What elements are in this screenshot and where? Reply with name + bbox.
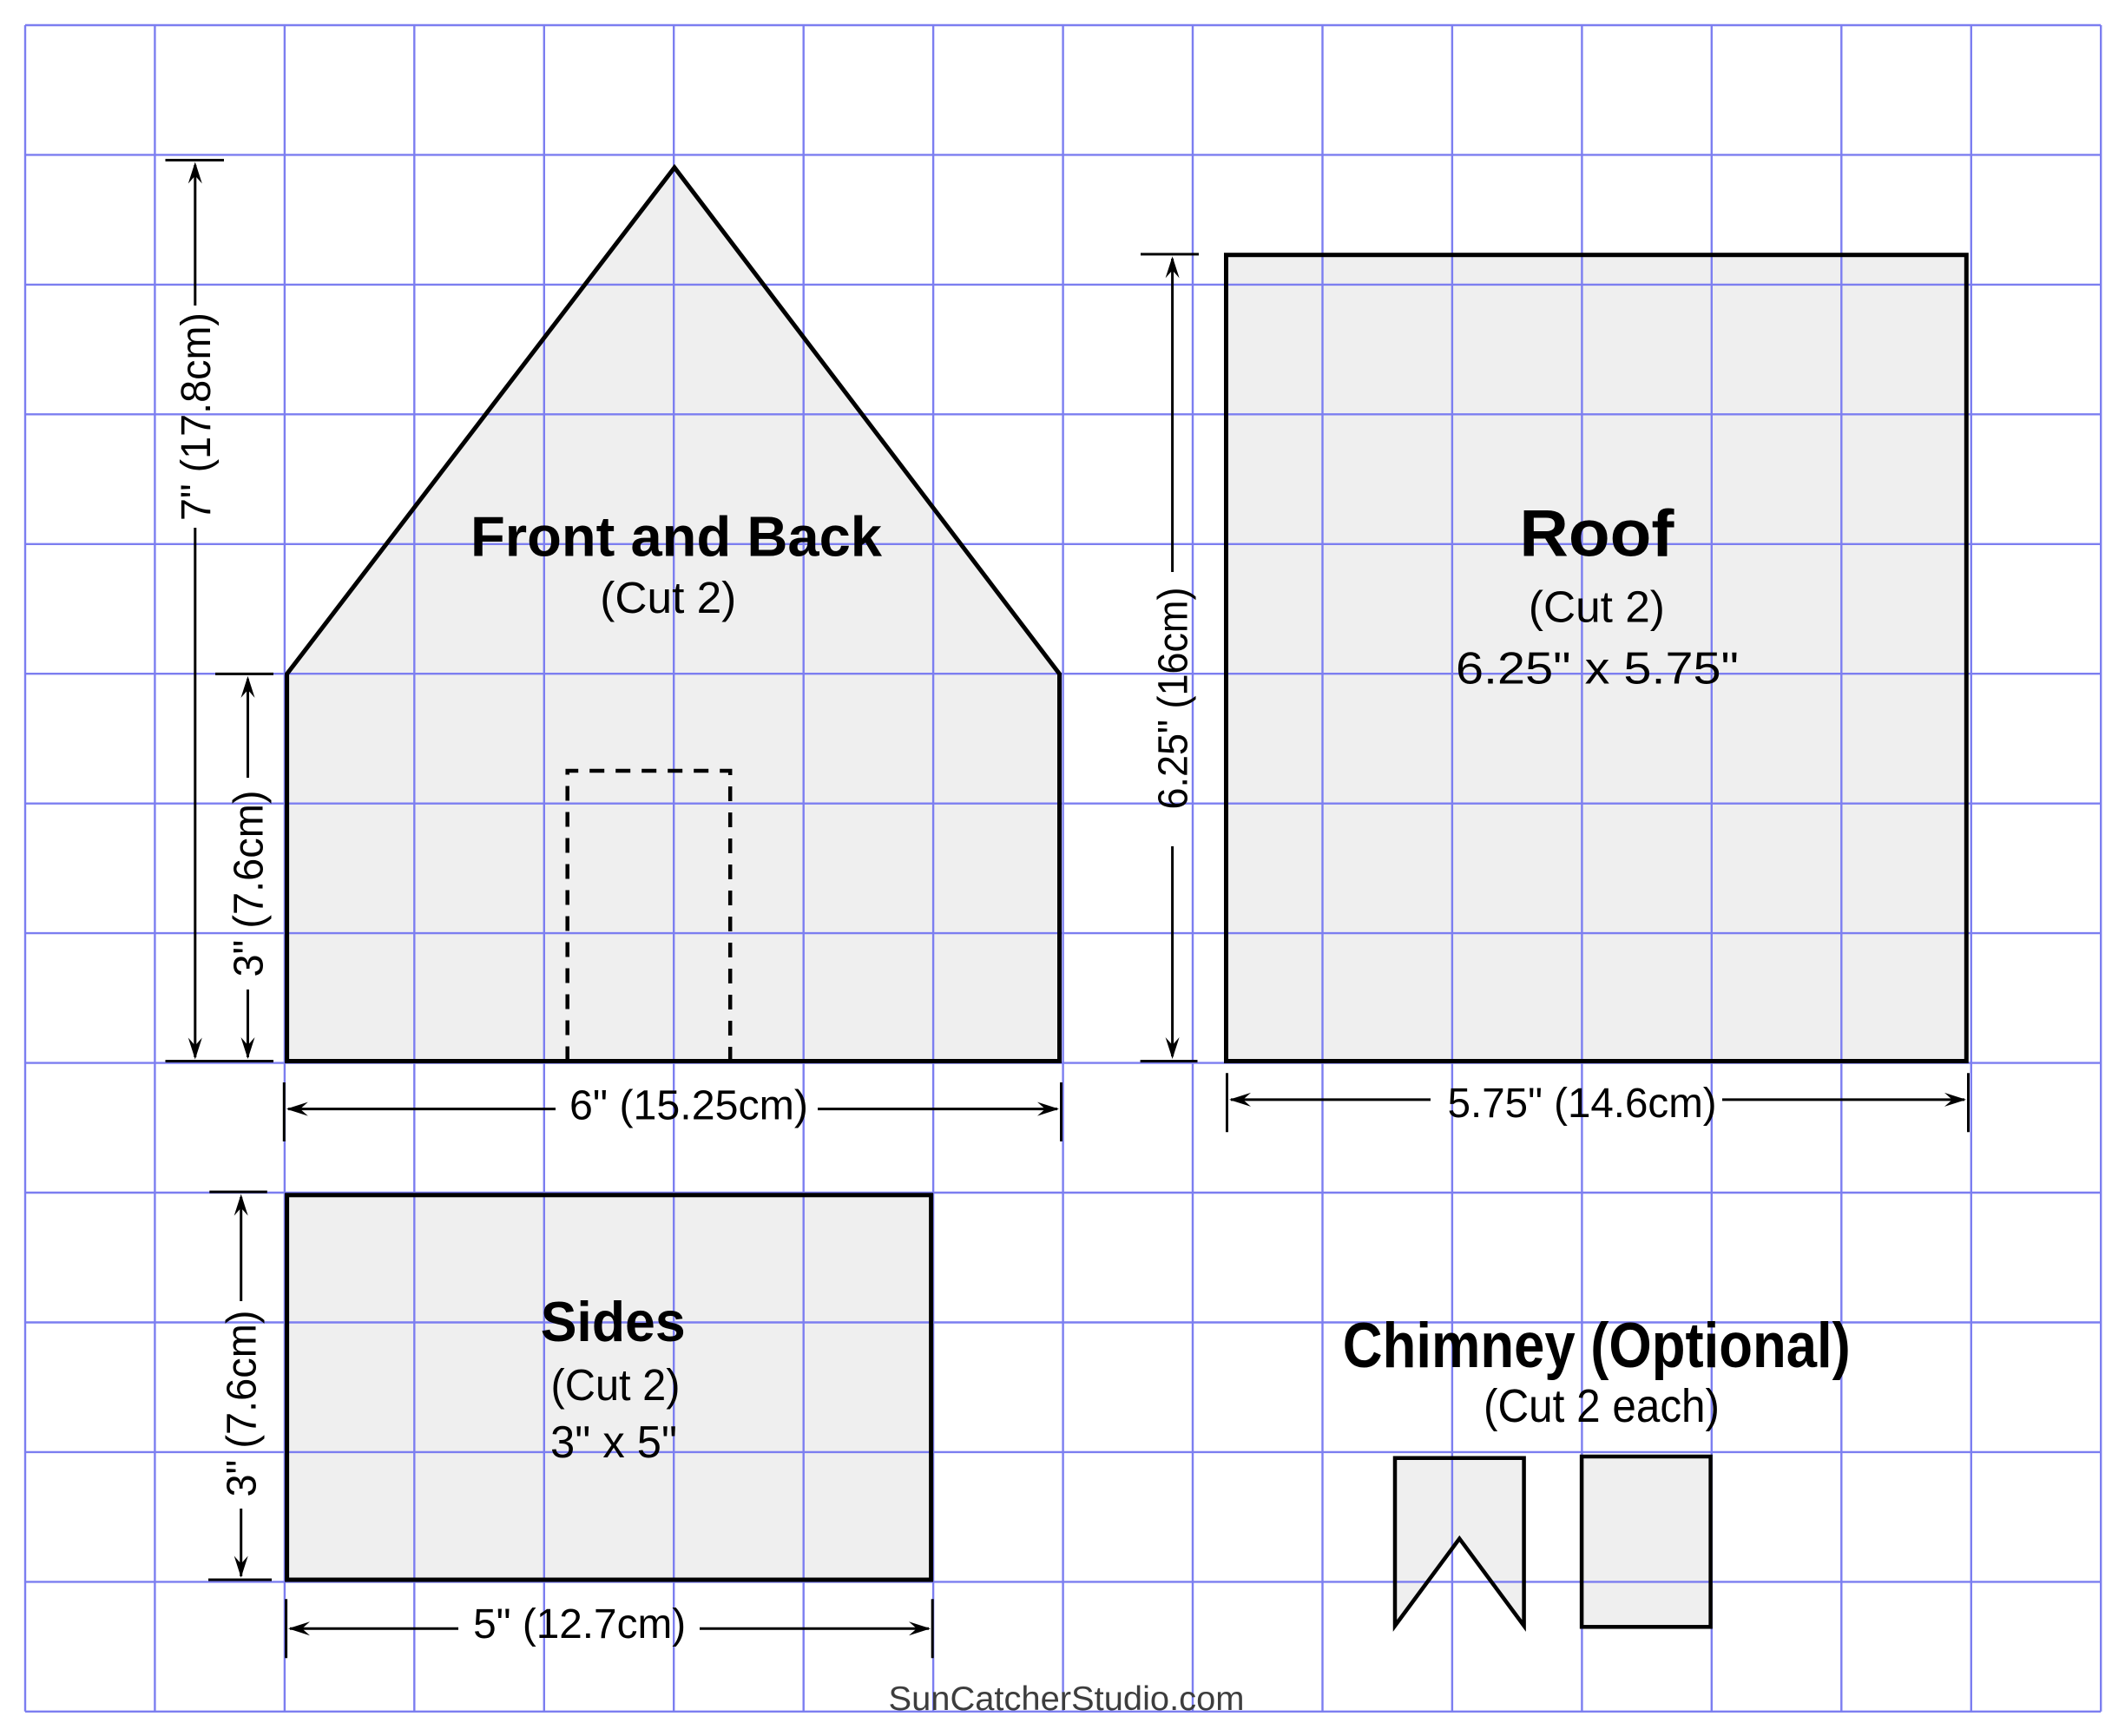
svg-text:SunCatcherStudio.com: SunCatcherStudio.com xyxy=(889,1680,1245,1718)
svg-text:3" (7.6cm): 3" (7.6cm) xyxy=(227,791,273,977)
svg-text:3" x 5": 3" x 5" xyxy=(550,1417,677,1468)
svg-text:7" (17.8cm): 7" (17.8cm) xyxy=(174,312,220,521)
svg-text:(Cut 2): (Cut 2) xyxy=(551,1360,681,1410)
svg-text:Chimney (Optional): Chimney (Optional) xyxy=(1343,1311,1851,1381)
svg-text:(Cut 2): (Cut 2) xyxy=(600,573,736,622)
svg-text:(Cut 2): (Cut 2) xyxy=(1529,582,1665,631)
svg-text:6.25" (16cm): 6.25" (16cm) xyxy=(1151,588,1197,810)
svg-text:Roof: Roof xyxy=(1519,497,1674,571)
svg-text:(Cut 2 each): (Cut 2 each) xyxy=(1484,1380,1720,1432)
svg-text:5" (12.7cm): 5" (12.7cm) xyxy=(473,1601,686,1647)
svg-text:5.75" (14.6cm): 5.75" (14.6cm) xyxy=(1448,1081,1717,1127)
svg-text:6.25" x 5.75": 6.25" x 5.75" xyxy=(1456,644,1739,694)
svg-text:3" (7.6cm): 3" (7.6cm) xyxy=(220,1311,266,1497)
svg-text:Sides: Sides xyxy=(541,1290,686,1353)
svg-text:Front and Back: Front and Back xyxy=(470,505,883,569)
svg-text:6" (15.25cm): 6" (15.25cm) xyxy=(569,1083,808,1129)
